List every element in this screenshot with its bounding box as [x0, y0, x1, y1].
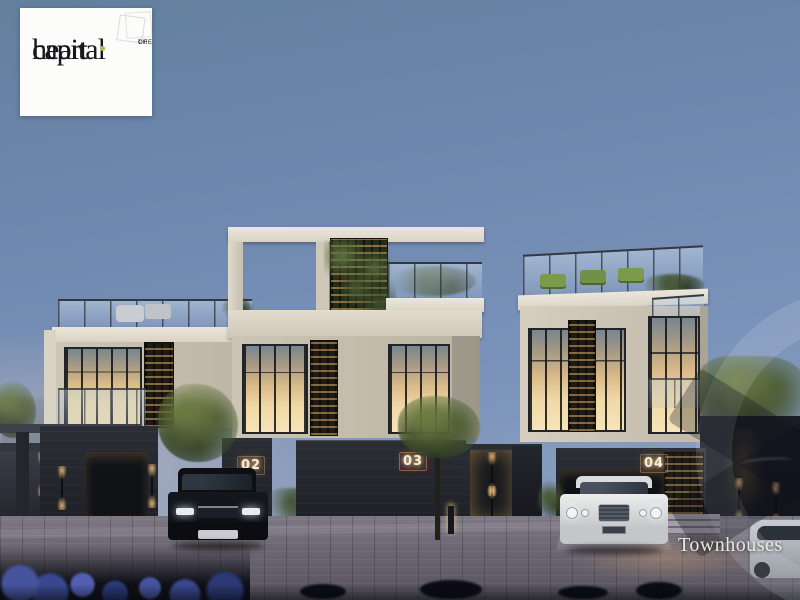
sedan-headlight-outer-left — [566, 507, 578, 519]
bottom-vignette — [0, 584, 800, 600]
garage-a-opening — [86, 452, 148, 520]
roof-lounger-3 — [618, 268, 644, 281]
white-luxury-sedan — [560, 476, 668, 552]
black-suv — [168, 468, 268, 548]
right-lattice-screen — [568, 320, 596, 432]
suv-headlight-right — [242, 508, 260, 515]
terrace-furniture — [116, 305, 144, 322]
rendering-canvas: 02 03 04 — [0, 0, 800, 600]
suv-headlight-left — [176, 508, 194, 515]
suv-skid-plate — [198, 530, 238, 539]
sedan-headlight-outer-right — [650, 507, 662, 519]
developer-logo-card: heart capital of the — [20, 8, 152, 116]
sedan-shadow — [566, 546, 662, 554]
logo-word-capital: capital — [32, 38, 105, 63]
left-pergola-pillar-1 — [16, 432, 29, 520]
sedan-headlight-inner-left — [581, 509, 589, 517]
sedan-headlight-inner-right — [639, 509, 647, 517]
left-side-wall — [44, 330, 56, 428]
suv-windshield — [182, 474, 252, 490]
street-tree-2-trunk — [435, 448, 440, 540]
sedan-grille — [598, 504, 630, 522]
center-window-left — [242, 344, 308, 434]
bollard-light — [448, 506, 454, 534]
caption-townhouses: Townhouses — [678, 534, 783, 557]
roof-lounger-1 — [540, 274, 566, 287]
wall-a-sconce-2 — [146, 464, 158, 508]
logo-tagline-line-2: the — [138, 40, 153, 47]
roof-lounger-2 — [580, 270, 606, 283]
pillar-c — [512, 446, 542, 522]
street-tree-2 — [398, 396, 480, 458]
unit-number-04: 04 — [640, 454, 668, 473]
left-roof-slab — [52, 327, 254, 342]
logo-accent-dot — [100, 46, 105, 51]
sedan-plate — [602, 526, 626, 534]
center-terrace-railing — [388, 262, 482, 300]
street-tree-1 — [158, 384, 238, 462]
center-fascia — [228, 310, 482, 338]
left-balcony-railing — [58, 388, 146, 428]
suv-grille — [198, 506, 238, 518]
wall-a-sconce-1 — [56, 466, 68, 510]
center-lattice-screen — [310, 340, 338, 436]
